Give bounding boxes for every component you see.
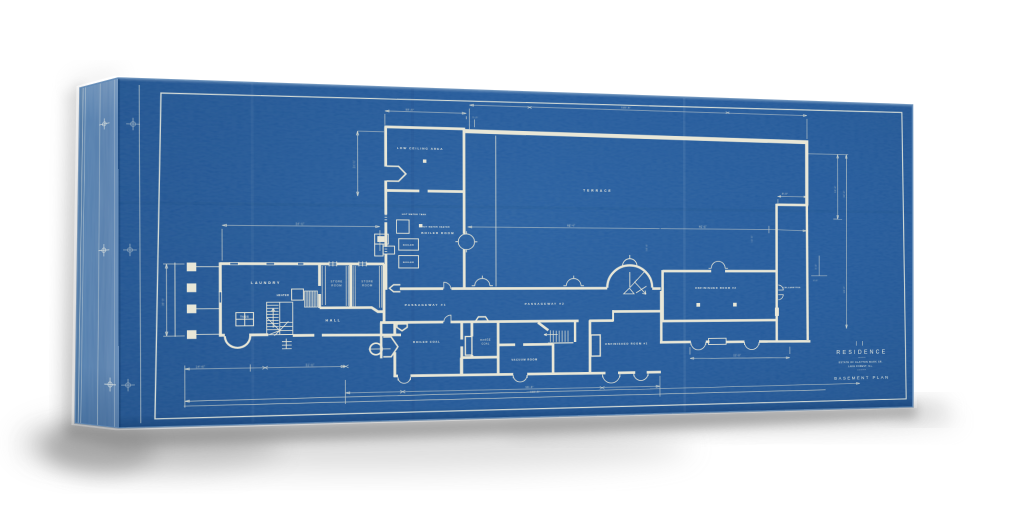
svg-text:40'-6": 40'-6" [699, 225, 707, 228]
svg-text:RANGE: RANGE [480, 338, 491, 342]
svg-text:HALL: HALL [326, 319, 342, 323]
svg-text:BOILER COAL: BOILER COAL [413, 340, 440, 344]
svg-text:18'-6": 18'-6" [834, 186, 837, 193]
svg-text:RESIDENCE: RESIDENCE [836, 349, 887, 356]
svg-text:14'-0": 14'-0" [751, 235, 753, 242]
svg-text:4'-0": 4'-0" [813, 280, 818, 282]
svg-text:LAUNDRY: LAUNDRY [251, 281, 281, 285]
svg-text:UNFINISHED ROOM #1: UNFINISHED ROOM #1 [605, 342, 648, 346]
svg-text:34'-6": 34'-6" [296, 222, 305, 226]
svg-text:UNFINISHED ROOM #2: UNFINISHED ROOM #2 [695, 286, 737, 289]
svg-text:5'-0": 5'-0" [473, 117, 479, 119]
svg-text:36'-0": 36'-0" [161, 298, 165, 306]
svg-text:TUBS: TUBS [240, 315, 249, 319]
svg-text:BOILER: BOILER [403, 244, 414, 247]
svg-text:ROOM: ROOM [362, 284, 373, 288]
svg-text:16'-0": 16'-0" [646, 244, 649, 251]
svg-text:16'-6": 16'-6" [406, 108, 414, 112]
svg-text:BOILER ROOM: BOILER ROOM [421, 231, 454, 235]
svg-text:33'-0": 33'-0" [733, 354, 740, 357]
svg-text:56'-6": 56'-6" [526, 385, 534, 389]
svg-text:48'-4": 48'-4" [567, 224, 575, 228]
svg-text:116'-6": 116'-6" [622, 106, 631, 110]
svg-text:ROOM: ROOM [331, 284, 342, 288]
svg-text:8'-6": 8'-6" [782, 192, 788, 195]
svg-text:HOT WATER TANK: HOT WATER TANK [402, 213, 427, 216]
svg-text:~~~~~: ~~~~~ [857, 369, 866, 372]
svg-text:2'-0": 2'-0" [815, 264, 817, 269]
svg-text:HEATER: HEATER [277, 293, 289, 297]
svg-text:14'-6": 14'-6" [196, 365, 205, 369]
svg-text:24'-0": 24'-0" [842, 286, 845, 293]
svg-text:COAL: COAL [481, 342, 489, 346]
svg-text:TERRACE: TERRACE [583, 189, 612, 193]
svg-text:PASSAGEWAY #1: PASSAGEWAY #1 [405, 303, 447, 307]
svg-text:30'-6": 30'-6" [842, 190, 845, 197]
svg-text:BOILER: BOILER [403, 261, 414, 264]
svg-text:PASSAGEWAY #2: PASSAGEWAY #2 [525, 302, 565, 306]
svg-text:~~~~: ~~~~ [858, 356, 866, 359]
svg-text:CELLARETTES: CELLARETTES [783, 286, 800, 289]
svg-text:LAKE FOREST, ILL.: LAKE FOREST, ILL. [848, 364, 873, 368]
svg-text:24'-6": 24'-6" [352, 160, 356, 168]
svg-text:HOT WATER HEATER: HOT WATER HEATER [422, 226, 450, 229]
svg-text:31'-6": 31'-6" [306, 363, 315, 367]
svg-text:VACUUM ROOM: VACUUM ROOM [511, 358, 537, 362]
svg-text:106'-6": 106'-6" [530, 390, 540, 394]
